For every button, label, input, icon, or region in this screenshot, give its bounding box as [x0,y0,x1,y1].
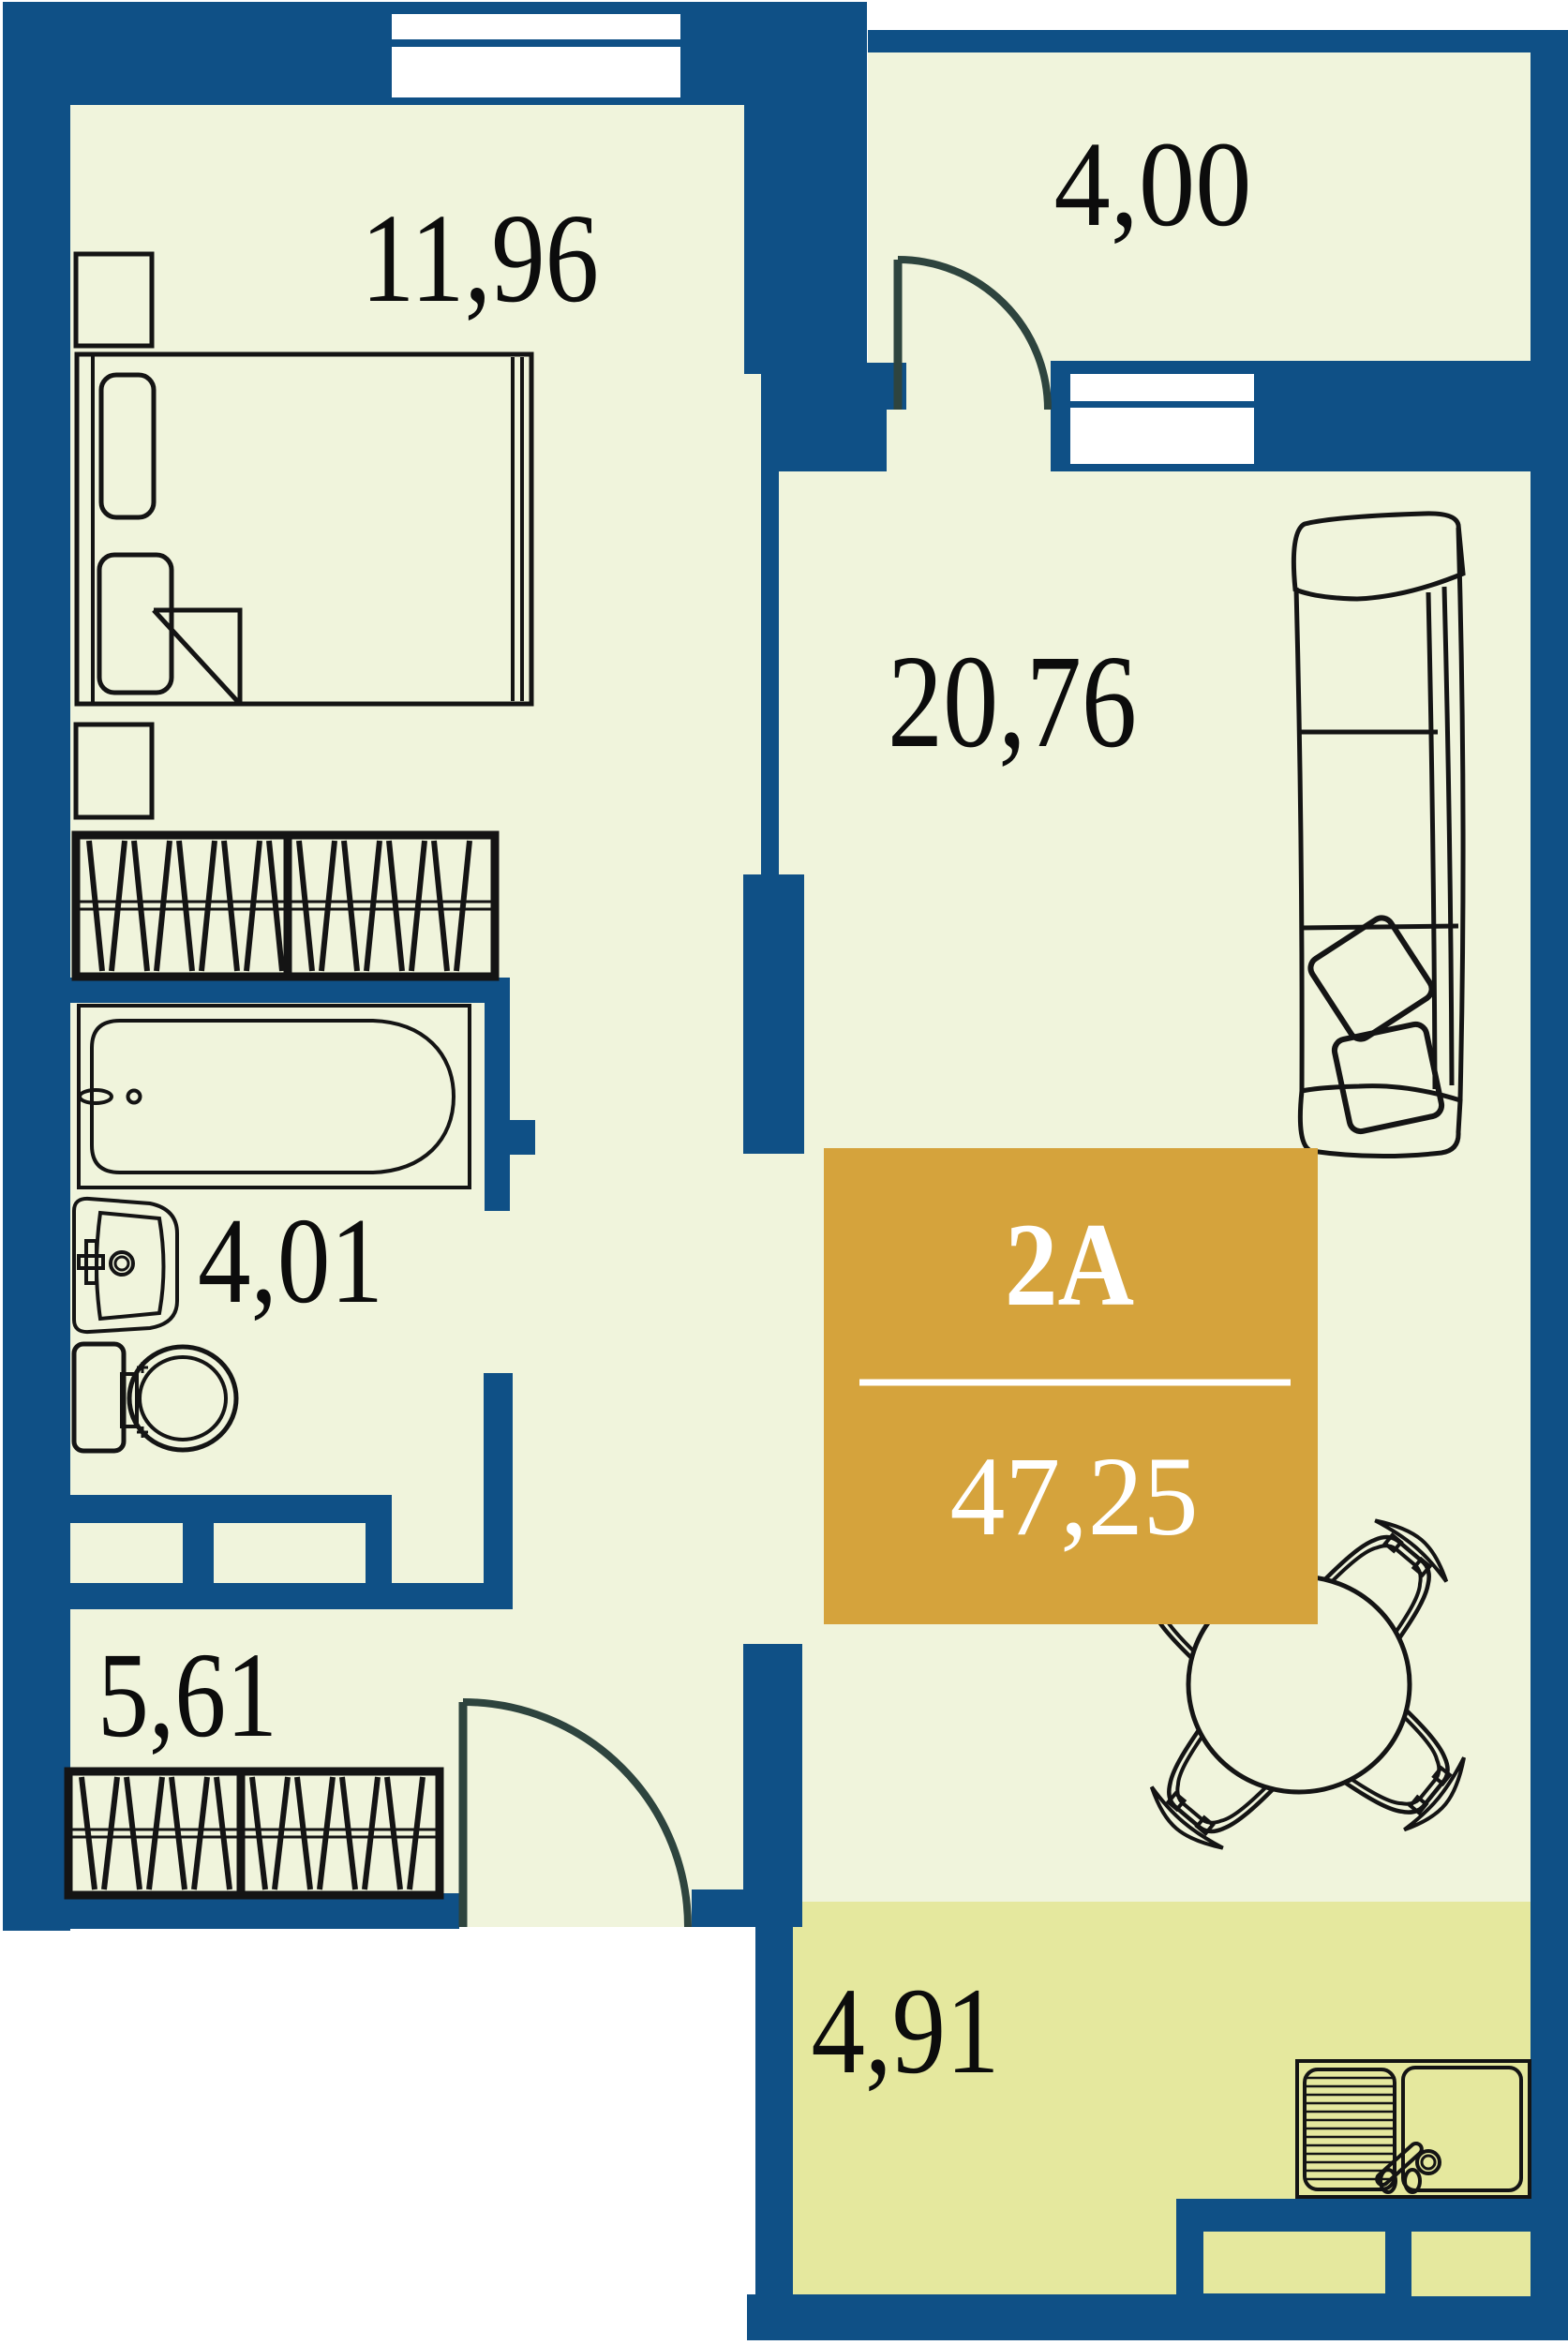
svg-text:47,25: 47,25 [950,1434,1199,1560]
svg-text:4,00: 4,00 [1054,117,1252,252]
svg-text:4,91: 4,91 [812,1962,1000,2099]
svg-text:4,01: 4,01 [198,1193,383,1329]
svg-text:5,61: 5,61 [97,1628,277,1763]
svg-text:11,96: 11,96 [361,188,599,329]
svg-text:20,76: 20,76 [888,627,1137,775]
svg-text:2A: 2A [1005,1200,1134,1331]
